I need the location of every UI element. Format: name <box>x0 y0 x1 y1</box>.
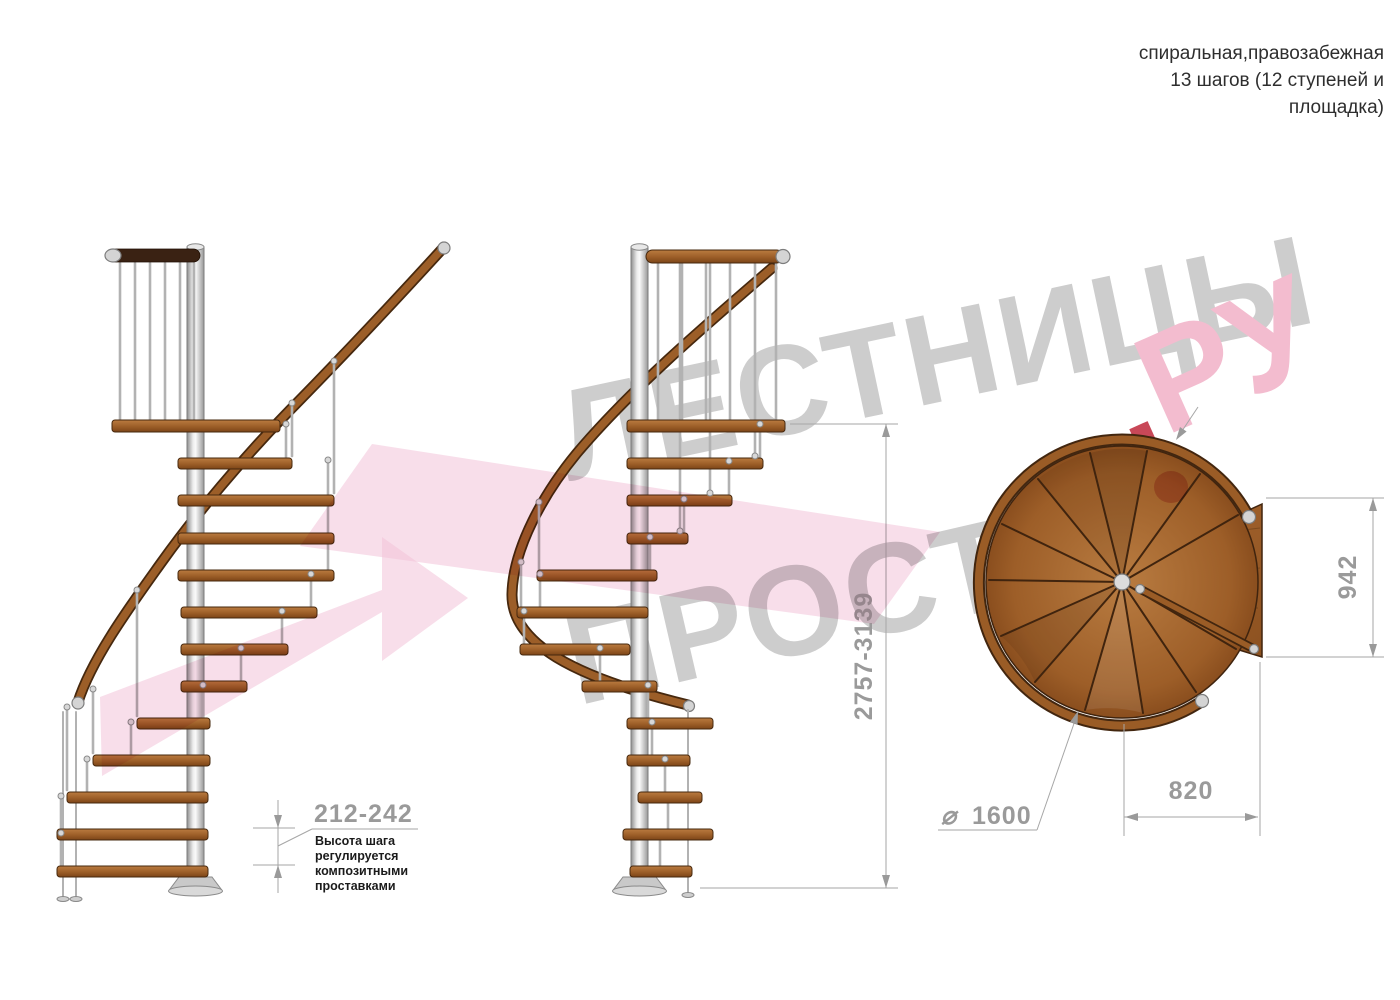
step-height-note: Высота шага регулируется композитными пр… <box>315 834 408 894</box>
plan-handrail-cap <box>1196 695 1209 708</box>
step <box>630 866 692 877</box>
plan-handrail-cap <box>1243 511 1256 524</box>
dim-step-height-label: 212-242 <box>314 800 413 828</box>
diameter-symbol: ⌀ <box>941 802 959 830</box>
dim-landing-depth: 942 <box>1266 498 1384 657</box>
top-rail-cap <box>105 249 121 262</box>
handrail-cap-top <box>438 242 450 254</box>
baluster-foot <box>57 897 69 902</box>
center-pole <box>187 247 204 887</box>
stair-plan-view <box>979 440 1262 726</box>
drawing-title-line3: площадка) <box>1139 94 1384 121</box>
pole-cap <box>631 244 648 250</box>
step <box>57 866 208 877</box>
landing-handrail-cap <box>1250 645 1259 654</box>
handrail-cap-bottom <box>72 697 84 709</box>
step <box>638 792 702 803</box>
step <box>517 607 648 618</box>
platform-railing <box>105 249 200 420</box>
platform-step <box>112 420 280 432</box>
watermark-dot-tint <box>1154 471 1188 503</box>
baluster-foot <box>70 897 82 902</box>
drawing-title: спиральная,правозабежная 13 шагов (12 ст… <box>1139 40 1384 121</box>
step <box>181 607 317 618</box>
plan-leader-arrow <box>1173 407 1198 442</box>
staircase-drawing: 2757-3139 942 820 ⌀ 1600 <box>0 0 1400 1000</box>
step <box>57 829 208 840</box>
dim-landing-depth-label: 942 <box>1334 555 1362 600</box>
step <box>178 495 334 506</box>
step <box>178 458 292 469</box>
landing-handrail-cap <box>1136 585 1145 594</box>
drawing-title-line2: 13 шагов (12 ступеней и <box>1139 67 1384 94</box>
step <box>627 458 763 469</box>
step <box>67 792 208 803</box>
top-rail <box>646 250 783 263</box>
handrail-cap-bottom <box>684 701 695 712</box>
dim-diameter-label: 1600 <box>972 802 1032 830</box>
pole-base <box>169 886 223 896</box>
drawing-canvas: ЛЕСТНИЦЫ ПРОСТО .РУ <box>0 0 1400 1000</box>
step <box>623 829 713 840</box>
pole-base <box>613 886 667 896</box>
pole-top-cap <box>1114 574 1130 590</box>
dim-diameter: ⌀ 1600 <box>938 710 1082 830</box>
drawing-title-line1: спиральная,правозабежная <box>1139 40 1384 67</box>
baluster-foot <box>682 893 694 898</box>
step <box>627 718 713 729</box>
step <box>520 644 630 655</box>
step <box>627 755 690 766</box>
top-rail-cap <box>776 250 790 264</box>
dim-landing-length-label: 820 <box>1169 777 1214 805</box>
